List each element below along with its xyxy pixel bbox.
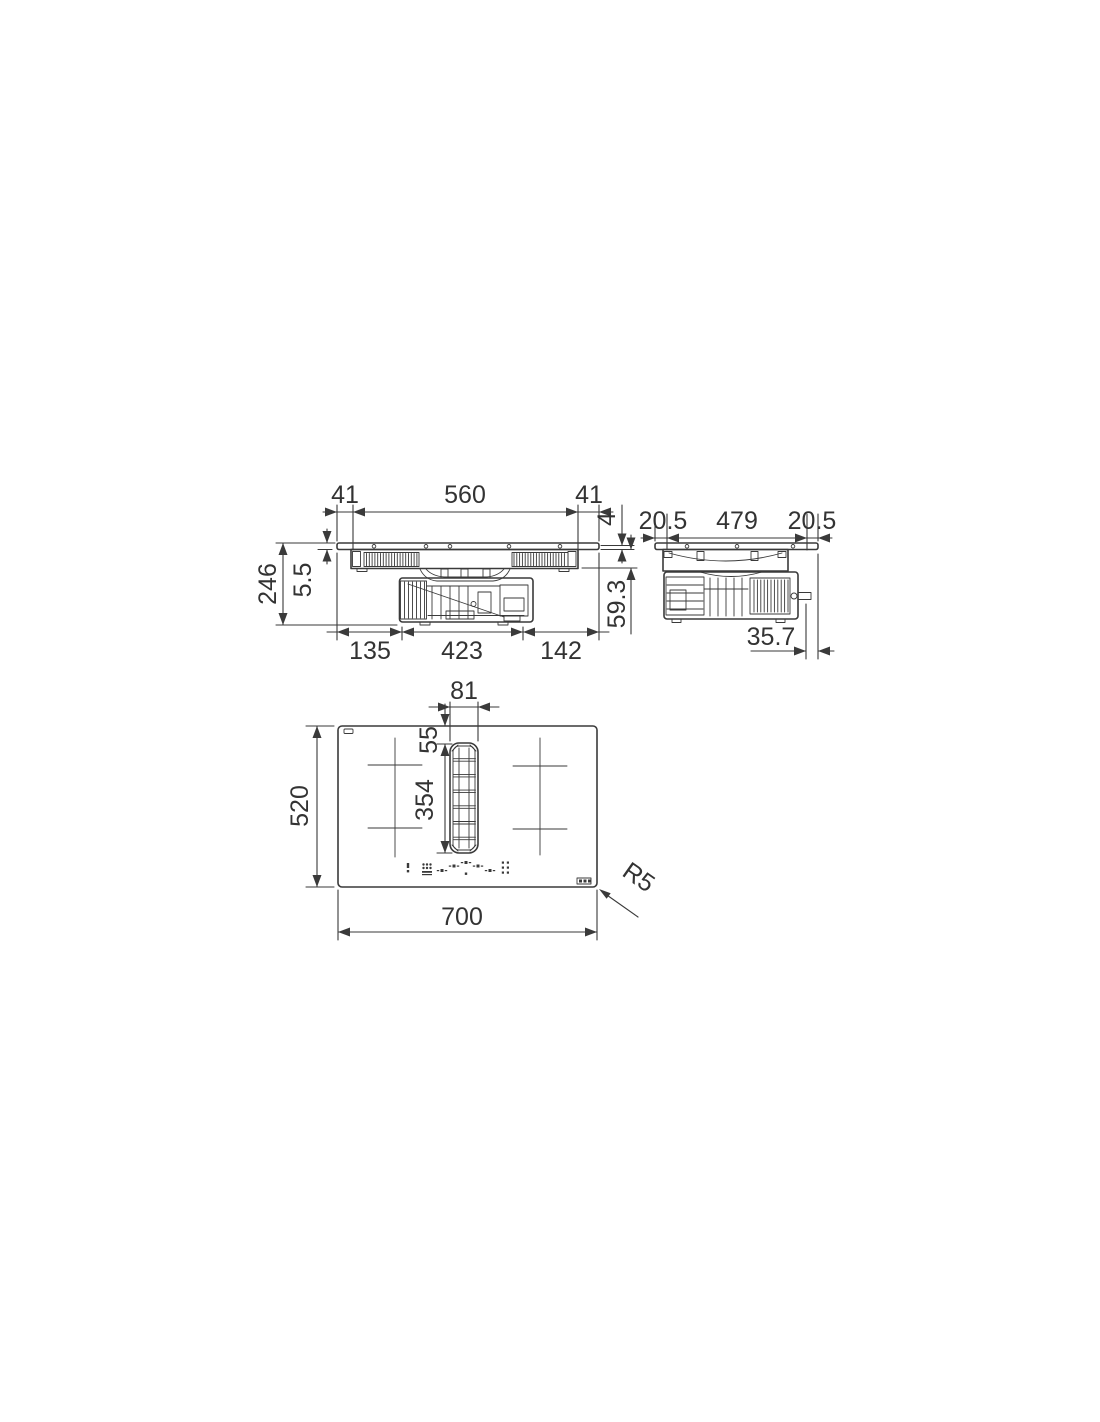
dim-front-underside: 59.3: [603, 580, 631, 629]
dim-front-top-right: 41: [575, 481, 603, 509]
dim-front-top-left: 41: [331, 481, 359, 509]
dim-side-top-right: 20.5: [788, 507, 837, 535]
dim-front-top-center: 560: [444, 481, 486, 509]
dim-front-step: 4: [593, 512, 621, 526]
drawing-canvas: 41 560 41 246 5.5 4 59.3: [0, 0, 1100, 1422]
dim-front-height: 246: [254, 563, 282, 605]
power-icon: [407, 863, 409, 872]
background: [0, 0, 1100, 1422]
dimension-drawing: 41 560 41 246 5.5 4 59.3: [0, 0, 1100, 1422]
dim-front-bottom-right: 142: [540, 637, 582, 665]
dim-plan-grille-width: 81: [450, 677, 478, 705]
dim-side-motor-offset: 35.7: [747, 623, 796, 651]
dim-plan-depth: 520: [286, 785, 314, 827]
dim-side-top-left: 20.5: [639, 507, 688, 535]
dim-plan-grille-inset: 55: [415, 726, 443, 754]
dim-side-top-center: 479: [716, 507, 758, 535]
dim-front-bottom-center: 423: [441, 637, 483, 665]
dim-plan-grille-length: 354: [411, 779, 439, 821]
dim-front-glass-thickness: 5.5: [289, 563, 317, 598]
dim-front-bottom-left: 135: [349, 637, 391, 665]
dim-plan-width: 700: [441, 903, 483, 931]
